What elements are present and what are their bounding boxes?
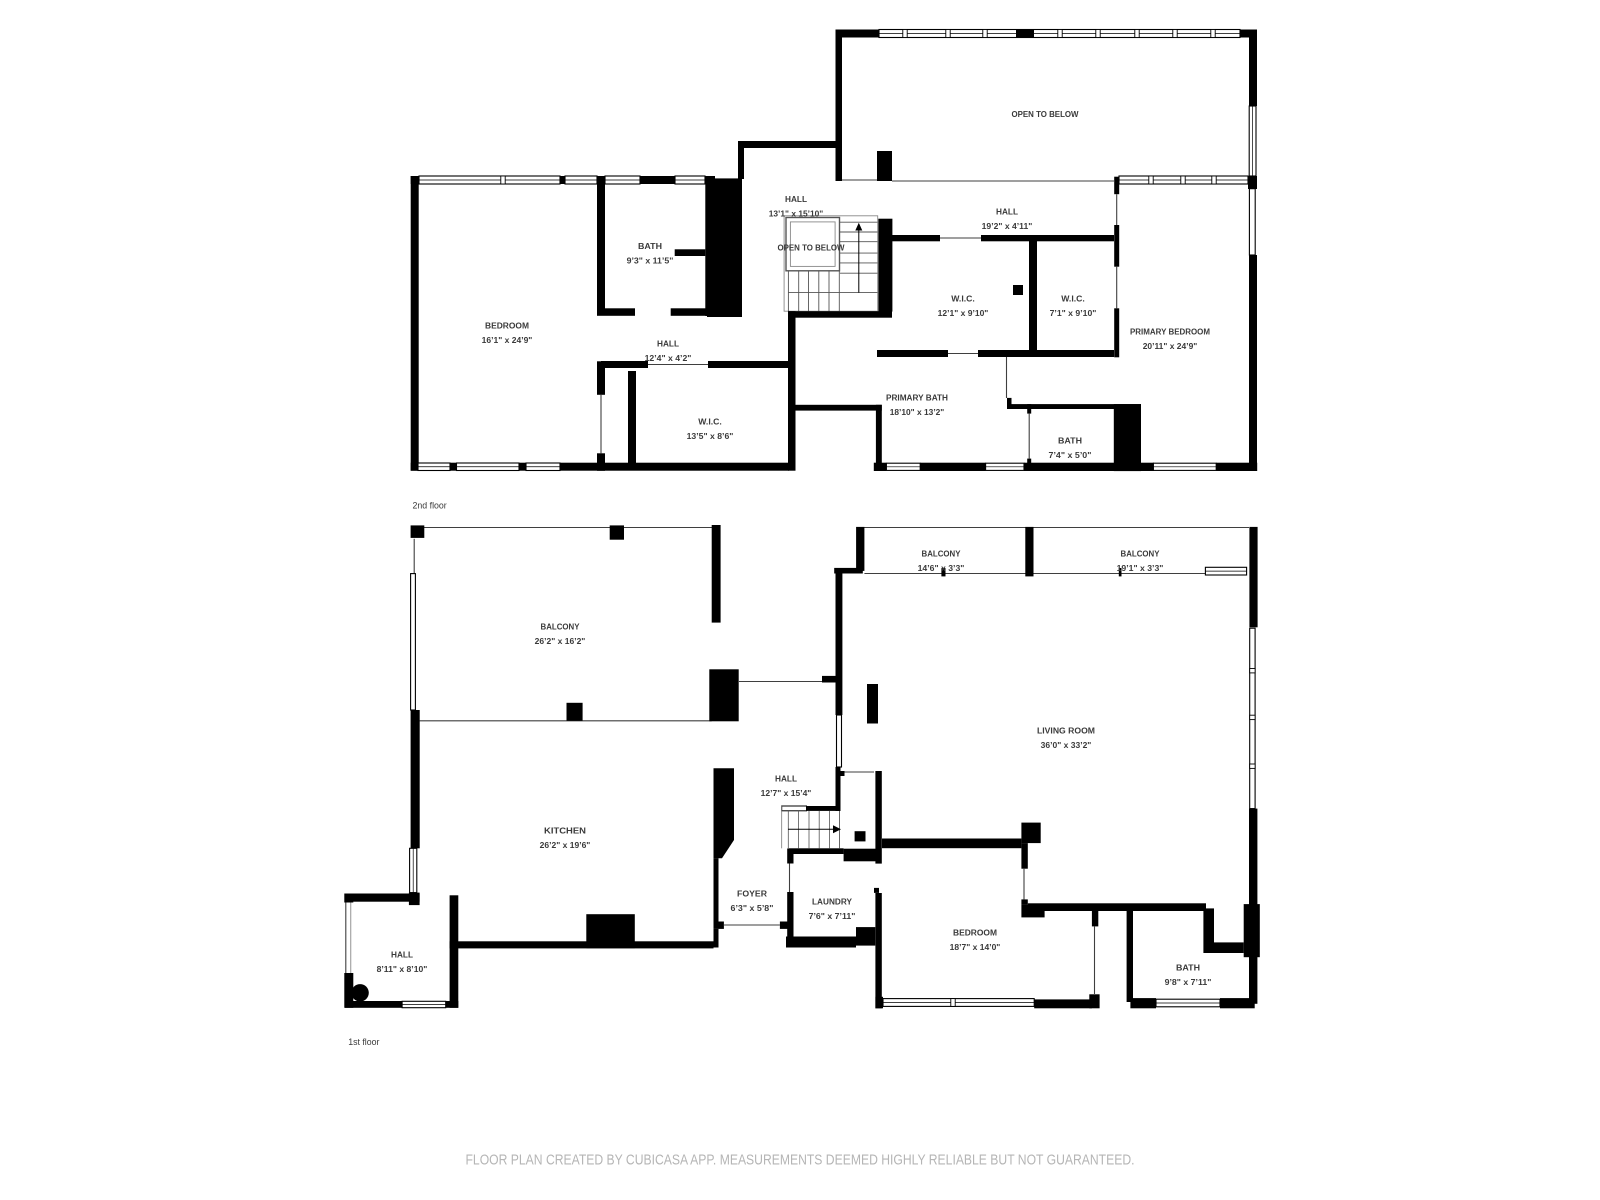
svg-text:W.I.C.: W.I.C.	[951, 294, 975, 304]
svg-text:FLOOR PLAN CREATED BY CUBICASA: FLOOR PLAN CREATED BY CUBICASA APP. MEAS…	[466, 1153, 1135, 1169]
svg-text:1st floor: 1st floor	[348, 1037, 379, 1047]
svg-text:12’1" x 9’10": 12’1" x 9’10"	[938, 308, 989, 318]
svg-text:HALL: HALL	[785, 194, 807, 204]
svg-text:PRIMARY BATH: PRIMARY BATH	[886, 393, 948, 403]
svg-text:OPEN TO BELOW: OPEN TO BELOW	[1012, 109, 1080, 119]
svg-text:W.I.C.: W.I.C.	[1061, 294, 1085, 304]
svg-text:2nd floor: 2nd floor	[413, 501, 447, 511]
svg-text:7’4" x 5’0": 7’4" x 5’0"	[1049, 450, 1092, 460]
svg-text:14’6" x 3’3": 14’6" x 3’3"	[918, 563, 965, 573]
svg-text:BATH: BATH	[638, 241, 662, 251]
svg-text:BALCONY: BALCONY	[1121, 549, 1160, 559]
svg-text:16’1" x 24’9": 16’1" x 24’9"	[482, 335, 533, 345]
svg-text:HALL: HALL	[775, 774, 797, 784]
svg-text:7’1" x 9’10": 7’1" x 9’10"	[1050, 308, 1097, 318]
svg-text:BEDROOM: BEDROOM	[953, 928, 997, 938]
svg-text:BEDROOM: BEDROOM	[485, 321, 529, 331]
svg-text:BALCONY: BALCONY	[922, 549, 961, 559]
svg-text:19’1" x 3’3": 19’1" x 3’3"	[1117, 563, 1164, 573]
svg-text:18’10" x 13’2": 18’10" x 13’2"	[890, 407, 945, 417]
svg-text:7’6" x 7’11": 7’6" x 7’11"	[809, 911, 856, 921]
svg-text:18’7" x 14’0": 18’7" x 14’0"	[950, 942, 1001, 952]
svg-text:12’4" x 4’2": 12’4" x 4’2"	[645, 353, 692, 363]
svg-text:13’5" x 8’6": 13’5" x 8’6"	[687, 431, 734, 441]
svg-text:LAUNDRY: LAUNDRY	[812, 897, 852, 907]
svg-text:19’2" x 4’11": 19’2" x 4’11"	[982, 221, 1033, 231]
svg-text:9’3" x 11’5": 9’3" x 11’5"	[627, 256, 674, 266]
svg-text:26’2" x 16’2": 26’2" x 16’2"	[535, 636, 586, 646]
svg-text:LIVING ROOM: LIVING ROOM	[1037, 726, 1095, 736]
svg-text:BATH: BATH	[1058, 436, 1082, 446]
svg-text:6’3" x 5’8": 6’3" x 5’8"	[731, 903, 774, 913]
svg-text:PRIMARY BEDROOM: PRIMARY BEDROOM	[1130, 327, 1210, 337]
svg-text:13’1" x 15’10": 13’1" x 15’10"	[769, 209, 824, 219]
svg-text:KITCHEN: KITCHEN	[544, 826, 586, 836]
svg-text:26’2" x 19’6": 26’2" x 19’6"	[540, 840, 591, 850]
svg-text:FOYER: FOYER	[737, 889, 768, 899]
svg-text:8’11" x 8’10": 8’11" x 8’10"	[377, 964, 428, 974]
svg-text:HALL: HALL	[996, 207, 1018, 217]
svg-text:BALCONY: BALCONY	[541, 622, 580, 632]
svg-text:36’0" x 33’2": 36’0" x 33’2"	[1041, 740, 1092, 750]
svg-text:HALL: HALL	[391, 950, 413, 960]
svg-text:20’11" x 24’9": 20’11" x 24’9"	[1143, 341, 1198, 351]
svg-text:BATH: BATH	[1176, 963, 1200, 973]
svg-text:9’8" x 7’11": 9’8" x 7’11"	[1165, 977, 1212, 987]
svg-text:12’7" x 15’4": 12’7" x 15’4"	[761, 788, 812, 798]
svg-text:OPEN TO BELOW: OPEN TO BELOW	[778, 243, 846, 253]
svg-text:W.I.C.: W.I.C.	[698, 417, 722, 427]
svg-text:HALL: HALL	[657, 339, 679, 349]
